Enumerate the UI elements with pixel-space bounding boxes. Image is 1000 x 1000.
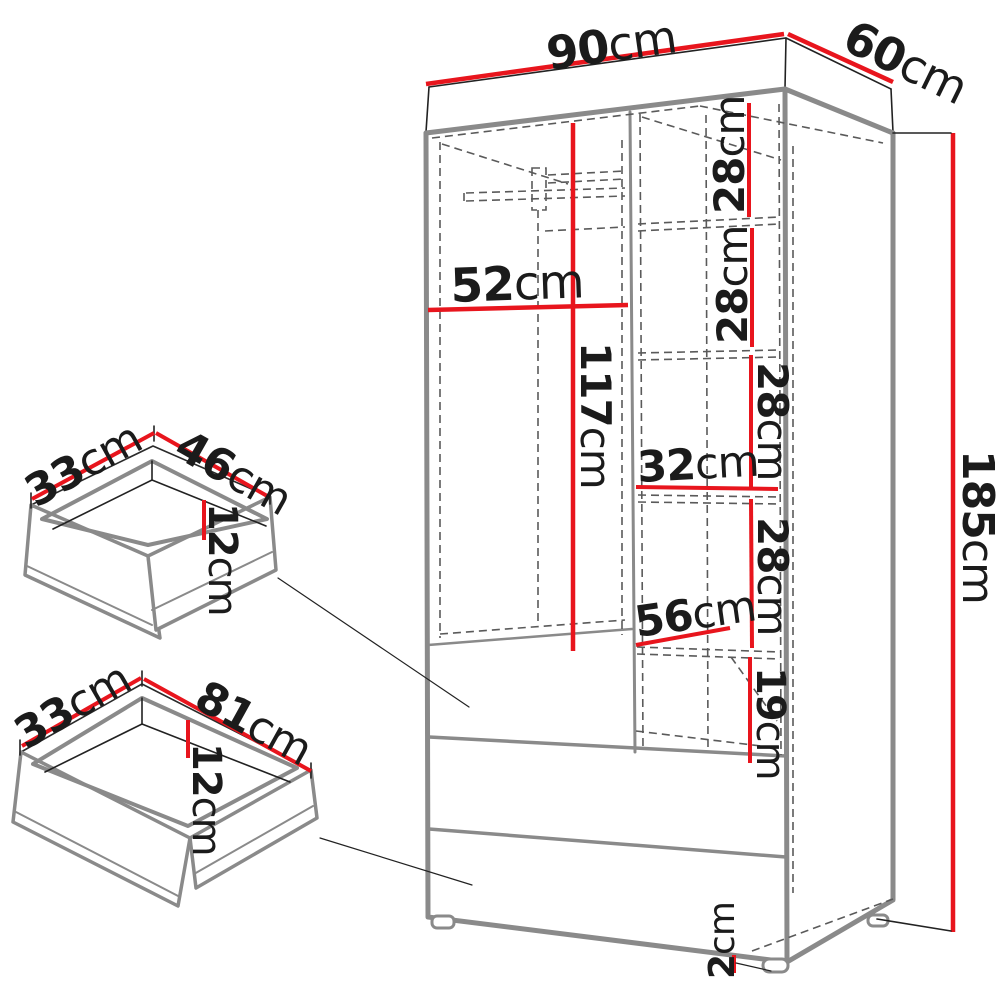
hanging-compartment-dashed — [432, 106, 883, 638]
shelf-3 — [638, 495, 780, 497]
hanging-width-label: 52cm — [449, 254, 584, 314]
depth-label: 60cm — [835, 9, 976, 115]
hanging-height-label: 117cm — [571, 342, 620, 489]
height-label: 185cm — [952, 450, 1000, 604]
drawer-divider-1 — [429, 737, 786, 756]
small-drawer-height-label: 12cm — [199, 503, 245, 616]
shelf-width-label: 32cm — [636, 437, 760, 493]
foot-front-left — [432, 916, 454, 928]
hanging-rod — [466, 188, 625, 193]
diagram-canvas: 90cm 60cm 185cm 52cm 117cm 28cm 28cm 28c… — [0, 0, 1000, 1000]
shelf-gap-2-label: 28cm — [708, 226, 757, 344]
hanging-section-floor — [428, 629, 632, 645]
shelf-depth-label: 56cm — [632, 581, 759, 647]
center-divider — [630, 112, 635, 752]
width-label: 90cm — [543, 9, 679, 81]
large-drawer-detail: 33cm 81cm 12cm — [6, 653, 472, 906]
wardrobe-dimension-labels: 90cm 60cm 185cm 52cm 117cm 28cm 28cm 28c… — [449, 9, 1000, 979]
drawer-divider-2 — [429, 829, 786, 857]
shelf-2 — [638, 350, 780, 353]
large-drawer-leader-line — [320, 838, 472, 885]
large-drawer-height-label: 12cm — [183, 743, 229, 856]
wardrobe-body-outline — [426, 89, 893, 962]
wardrobe-dimension-lines — [426, 34, 953, 973]
bottom-niche-label: 19cm — [747, 667, 793, 780]
small-drawer-detail: 33cm 46cm 12cm — [17, 413, 469, 707]
shelf-4 — [637, 647, 780, 652]
wardrobe: 90cm 60cm 185cm 52cm 117cm 28cm 28cm 28c… — [426, 9, 1000, 979]
feet-height-label: 2cm — [702, 902, 743, 979]
shelf-gap-1-label: 28cm — [705, 96, 754, 214]
furniture-dimension-diagram: 90cm 60cm 185cm 52cm 117cm 28cm 28cm 28c… — [0, 0, 1000, 1000]
shelf-1 — [638, 217, 780, 224]
